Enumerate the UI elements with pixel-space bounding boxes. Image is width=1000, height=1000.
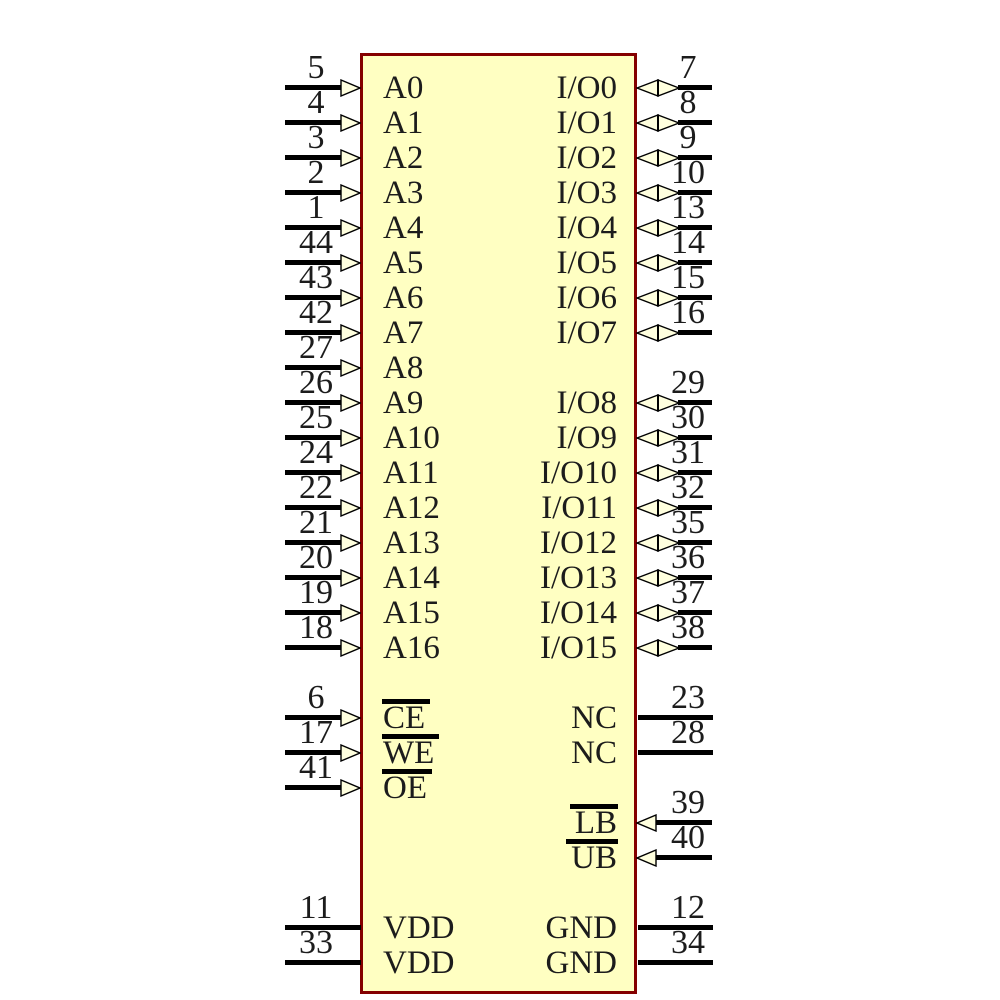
pin-label-I/O8: I/O8 xyxy=(557,384,618,422)
pin-label-text: I/O15 xyxy=(540,630,617,666)
pin-number-44: 44 xyxy=(290,226,342,260)
pin-label-GND: GND xyxy=(546,909,618,947)
pin-label-text: I/O0 xyxy=(557,70,618,106)
pin-number-33: 33 xyxy=(290,926,342,960)
pin-number-3: 3 xyxy=(290,121,342,155)
input-arrow-icon xyxy=(340,709,361,727)
pin-label-UB: UB xyxy=(571,839,617,877)
pin-number-43: 43 xyxy=(290,261,342,295)
schematic-canvas: 5A04A13A22A31A444A543A642A727A826A925A10… xyxy=(0,0,1000,1000)
pin-label-I/O15: I/O15 xyxy=(540,629,617,667)
pin-number-39: 39 xyxy=(662,786,714,820)
pin-number-16: 16 xyxy=(662,296,714,330)
pin-label-text: OE xyxy=(383,769,427,807)
input-arrow-icon xyxy=(340,79,361,97)
pin-label-text: A3 xyxy=(383,175,423,211)
input-arrow-icon xyxy=(340,569,361,587)
pin-label-I/O0: I/O0 xyxy=(557,69,618,107)
pin-label-I/O5: I/O5 xyxy=(557,244,618,282)
input-arrow-icon xyxy=(340,604,361,622)
pin-label-I/O10: I/O10 xyxy=(540,454,617,492)
pin-label-text: NC xyxy=(571,700,617,736)
pin-number-15: 15 xyxy=(662,261,714,295)
input-arrow-icon xyxy=(340,394,361,412)
pin-label-text: A11 xyxy=(383,455,439,491)
pin-number-9: 9 xyxy=(662,121,714,155)
pin-label-A7: A7 xyxy=(383,314,423,352)
pin-label-A1: A1 xyxy=(383,104,423,142)
pin-label-text: I/O8 xyxy=(557,385,618,421)
pin-label-A15: A15 xyxy=(383,594,440,632)
pin-label-text: UB xyxy=(571,839,617,877)
pin-label-text: A2 xyxy=(383,140,423,176)
pin-label-text: A16 xyxy=(383,630,440,666)
pin-number-2: 2 xyxy=(290,156,342,190)
pin-label-I/O4: I/O4 xyxy=(557,209,618,247)
pin-label-text: I/O6 xyxy=(557,280,618,316)
pin-label-A14: A14 xyxy=(383,559,440,597)
pin-label-text: I/O9 xyxy=(557,420,618,456)
pin-number-8: 8 xyxy=(662,86,714,120)
input-arrow-icon xyxy=(340,534,361,552)
pin-label-text: I/O11 xyxy=(541,490,617,526)
pin-number-17: 17 xyxy=(290,716,342,750)
pin-number-22: 22 xyxy=(290,471,342,505)
pin-label-A16: A16 xyxy=(383,629,440,667)
pin-number-19: 19 xyxy=(290,576,342,610)
pin-label-text: A15 xyxy=(383,595,440,631)
pin-label-A6: A6 xyxy=(383,279,423,317)
pin-label-CE: CE xyxy=(383,699,425,737)
pin-label-text: GND xyxy=(546,945,618,981)
pin-label-text: A5 xyxy=(383,245,423,281)
input-arrow-icon xyxy=(340,779,361,797)
pin-label-I/O14: I/O14 xyxy=(540,594,617,632)
pin-number-18: 18 xyxy=(290,611,342,645)
input-arrow-icon xyxy=(340,254,361,272)
pin-label-NC: NC xyxy=(571,734,617,772)
pin-number-32: 32 xyxy=(662,471,714,505)
pin-label-text: A6 xyxy=(383,280,423,316)
pin-label-A5: A5 xyxy=(383,244,423,282)
pin-number-14: 14 xyxy=(662,226,714,260)
pin-label-LB: LB xyxy=(575,804,617,842)
pin-label-A8: A8 xyxy=(383,349,423,387)
pin-number-42: 42 xyxy=(290,296,342,330)
pin-label-I/O7: I/O7 xyxy=(557,314,618,352)
pin-label-text: VDD xyxy=(383,910,455,946)
input-arrow-icon xyxy=(636,814,657,832)
pin-number-20: 20 xyxy=(290,541,342,575)
input-arrow-icon xyxy=(340,429,361,447)
pin-label-text: GND xyxy=(546,910,618,946)
pin-number-7: 7 xyxy=(662,51,714,85)
pin-number-24: 24 xyxy=(290,436,342,470)
pin-label-text: I/O2 xyxy=(557,140,618,176)
pin-label-I/O12: I/O12 xyxy=(540,524,617,562)
pin-label-VDD: VDD xyxy=(383,944,455,982)
pin-label-I/O11: I/O11 xyxy=(541,489,617,527)
pin-number-23: 23 xyxy=(662,681,714,715)
pin-label-text: I/O12 xyxy=(540,525,617,561)
pin-label-text: I/O13 xyxy=(540,560,617,596)
pin-label-GND: GND xyxy=(546,944,618,982)
pin-label-WE: WE xyxy=(383,734,434,772)
pin-label-text: I/O1 xyxy=(557,105,618,141)
pin-label-text: I/O7 xyxy=(557,315,618,351)
pin-number-34: 34 xyxy=(662,926,714,960)
input-arrow-icon xyxy=(340,464,361,482)
pin-label-I/O13: I/O13 xyxy=(540,559,617,597)
input-arrow-icon xyxy=(340,219,361,237)
pin-label-text: A14 xyxy=(383,560,440,596)
pin-number-12: 12 xyxy=(662,891,714,925)
input-arrow-icon xyxy=(340,359,361,377)
pin-label-OE: OE xyxy=(383,769,427,807)
pin-number-30: 30 xyxy=(662,401,714,435)
pin-number-28: 28 xyxy=(662,716,714,750)
pin-label-text: CE xyxy=(383,699,425,737)
input-arrow-icon xyxy=(340,289,361,307)
pin-label-NC: NC xyxy=(571,699,617,737)
pin-label-text: A9 xyxy=(383,385,423,421)
pin-label-A10: A10 xyxy=(383,419,440,457)
pin-label-text: A12 xyxy=(383,490,440,526)
pin-number-40: 40 xyxy=(662,821,714,855)
pin-number-5: 5 xyxy=(290,51,342,85)
pin-label-text: A10 xyxy=(383,420,440,456)
pin-label-text: A1 xyxy=(383,105,423,141)
pin-label-text: VDD xyxy=(383,945,455,981)
pin-label-A13: A13 xyxy=(383,524,440,562)
pin-number-13: 13 xyxy=(662,191,714,225)
pin-number-41: 41 xyxy=(290,751,342,785)
pin-label-I/O1: I/O1 xyxy=(557,104,618,142)
pin-label-text: NC xyxy=(571,735,617,771)
pin-number-1: 1 xyxy=(290,191,342,225)
pin-number-36: 36 xyxy=(662,541,714,575)
pin-label-text: LB xyxy=(575,804,617,842)
pin-label-text: A4 xyxy=(383,210,423,246)
pin-number-21: 21 xyxy=(290,506,342,540)
pin-number-11: 11 xyxy=(290,891,342,925)
pin-label-text: I/O3 xyxy=(557,175,618,211)
pin-number-35: 35 xyxy=(662,506,714,540)
pin-number-26: 26 xyxy=(290,366,342,400)
pin-label-text: I/O10 xyxy=(540,455,617,491)
pin-number-6: 6 xyxy=(290,681,342,715)
pin-number-31: 31 xyxy=(662,436,714,470)
pin-number-4: 4 xyxy=(290,86,342,120)
pin-label-text: I/O4 xyxy=(557,210,618,246)
pin-number-37: 37 xyxy=(662,576,714,610)
pin-label-text: A13 xyxy=(383,525,440,561)
pin-label-text: WE xyxy=(383,734,434,772)
pin-label-A4: A4 xyxy=(383,209,423,247)
pin-number-27: 27 xyxy=(290,331,342,365)
pin-number-25: 25 xyxy=(290,401,342,435)
pin-label-A2: A2 xyxy=(383,139,423,177)
pin-label-A0: A0 xyxy=(383,69,423,107)
pin-label-I/O6: I/O6 xyxy=(557,279,618,317)
pin-label-I/O2: I/O2 xyxy=(557,139,618,177)
input-arrow-icon xyxy=(340,114,361,132)
pin-label-text: A7 xyxy=(383,315,423,351)
pin-label-text: A8 xyxy=(383,350,423,386)
pin-number-38: 38 xyxy=(662,611,714,645)
input-arrow-icon xyxy=(340,639,361,657)
pin-label-I/O3: I/O3 xyxy=(557,174,618,212)
input-arrow-icon xyxy=(636,849,657,867)
input-arrow-icon xyxy=(340,744,361,762)
pin-label-A9: A9 xyxy=(383,384,423,422)
input-arrow-icon xyxy=(340,184,361,202)
pin-label-A12: A12 xyxy=(383,489,440,527)
pin-label-I/O9: I/O9 xyxy=(557,419,618,457)
pin-label-VDD: VDD xyxy=(383,909,455,947)
pin-label-text: I/O5 xyxy=(557,245,618,281)
input-arrow-icon xyxy=(340,324,361,342)
pin-label-text: I/O14 xyxy=(540,595,617,631)
pin-label-A11: A11 xyxy=(383,454,439,492)
pin-number-29: 29 xyxy=(662,366,714,400)
pin-number-10: 10 xyxy=(662,156,714,190)
input-arrow-icon xyxy=(340,149,361,167)
pin-label-A3: A3 xyxy=(383,174,423,212)
pin-label-text: A0 xyxy=(383,70,423,106)
input-arrow-icon xyxy=(340,499,361,517)
